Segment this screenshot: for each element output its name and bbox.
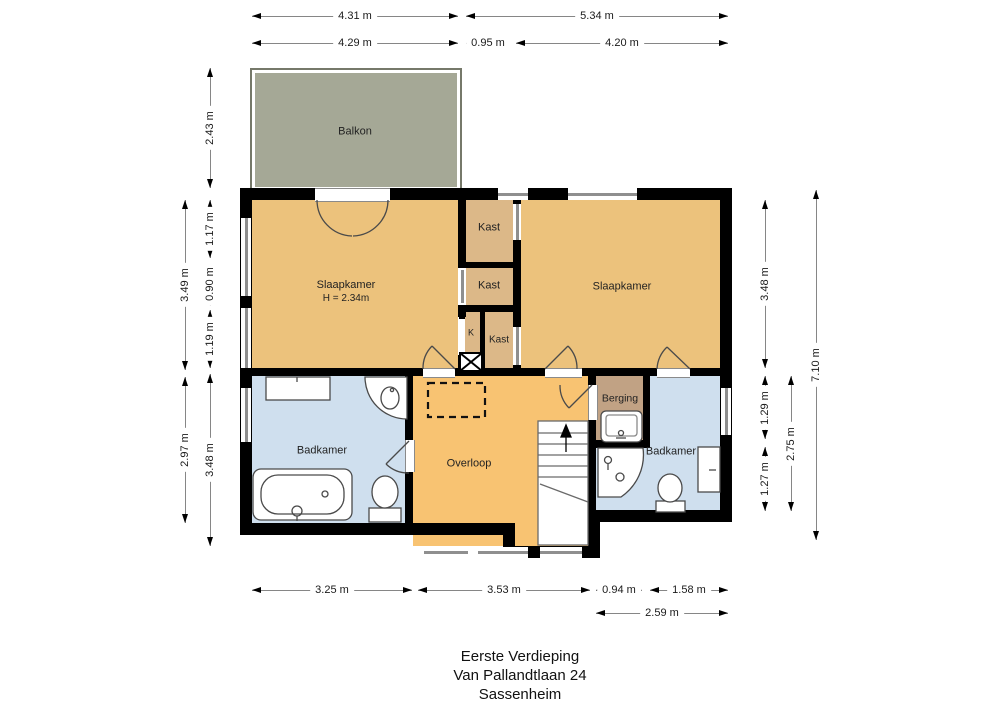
dim-arrowhead — [719, 40, 728, 46]
dim-label: 0.90 m — [204, 262, 216, 306]
dim-arrowhead — [182, 361, 188, 370]
dim-arrowhead — [207, 537, 213, 546]
dimension: 3.49 m — [179, 200, 191, 370]
dim-label: 1.58 m — [667, 584, 711, 596]
dim-arrowhead — [788, 502, 794, 511]
dim-arrowhead — [650, 587, 659, 593]
dim-arrowhead — [182, 377, 188, 386]
dim-label: 2.97 m — [179, 428, 191, 472]
dim-arrowhead — [252, 587, 261, 593]
dim-arrowhead — [762, 359, 768, 368]
dim-arrowhead — [813, 190, 819, 199]
dimension: 4.31 m — [252, 10, 458, 22]
dim-arrowhead — [719, 13, 728, 19]
dim-label: 3.49 m — [179, 263, 191, 307]
dim-label: 2.59 m — [640, 607, 684, 619]
dim-arrowhead — [762, 502, 768, 511]
dimension: 2.97 m — [179, 377, 191, 523]
dimension: 0.90 m — [204, 262, 216, 306]
dim-arrowhead — [252, 40, 261, 46]
dim-arrowhead — [252, 13, 261, 19]
dim-arrowhead — [516, 40, 525, 46]
plan-caption: Eerste Verdieping Van Pallandtlaan 24 Sa… — [453, 647, 586, 704]
dim-label: 2.43 m — [204, 106, 216, 150]
dim-label: 3.48 m — [759, 262, 771, 306]
dimension: 1.58 m — [650, 584, 728, 596]
dimension: 3.25 m — [252, 584, 412, 596]
dim-arrowhead — [466, 13, 475, 19]
dim-label: 5.34 m — [575, 10, 619, 22]
dimension: 4.20 m — [516, 37, 728, 49]
dimension: 0.94 m — [596, 584, 642, 596]
dim-label: 1.29 m — [759, 386, 771, 430]
dimension: 7.10 m — [810, 190, 822, 540]
dim-arrowhead — [719, 587, 728, 593]
dim-arrowhead — [719, 610, 728, 616]
caption-address: Van Pallandtlaan 24 — [453, 666, 586, 685]
dimension: 3.48 m — [759, 200, 771, 368]
dimension: 1.17 m — [204, 200, 216, 258]
dim-arrowhead — [762, 447, 768, 456]
dim-arrowhead — [182, 514, 188, 523]
dim-arrowhead — [596, 610, 605, 616]
dim-label: 0.95 m — [466, 37, 510, 49]
dim-arrowhead — [207, 179, 213, 188]
floorplan: BalkonSlaapkamerH = 2.34mKastKastKKastSl… — [0, 0, 1000, 707]
dimension: 2.43 m — [204, 68, 216, 188]
dim-label: 7.10 m — [810, 343, 822, 387]
dimension: 4.29 m — [252, 37, 458, 49]
dim-label: 4.31 m — [333, 10, 377, 22]
dim-arrowhead — [581, 587, 590, 593]
dim-label: 0.94 m — [597, 584, 641, 596]
dim-arrowhead — [762, 200, 768, 209]
dim-arrowhead — [762, 376, 768, 385]
dimension: 2.75 m — [785, 376, 797, 511]
dim-arrowhead — [207, 374, 213, 383]
dim-label: 1.19 m — [204, 317, 216, 361]
dim-label: 3.25 m — [310, 584, 354, 596]
dim-arrowhead — [403, 587, 412, 593]
dim-arrowhead — [182, 200, 188, 209]
dimension: 3.48 m — [204, 374, 216, 546]
dim-label: 4.20 m — [600, 37, 644, 49]
dimension: 0.95 m — [466, 37, 510, 49]
dim-label: 3.48 m — [204, 438, 216, 482]
caption-floor: Eerste Verdieping — [453, 647, 586, 666]
dimension: 1.29 m — [759, 376, 771, 439]
dim-arrowhead — [449, 40, 458, 46]
dim-label: 3.53 m — [482, 584, 526, 596]
dimension: 1.27 m — [759, 447, 771, 511]
dim-label: 4.29 m — [333, 37, 377, 49]
dim-label: 1.27 m — [759, 457, 771, 501]
dim-label: 1.17 m — [204, 207, 216, 251]
dim-arrowhead — [418, 587, 427, 593]
dim-arrowhead — [207, 68, 213, 77]
dimension: 5.34 m — [466, 10, 728, 22]
dim-arrowhead — [449, 13, 458, 19]
dim-arrowhead — [813, 531, 819, 540]
dim-arrowhead — [788, 376, 794, 385]
dim-arrowhead — [762, 430, 768, 439]
dimension: 2.59 m — [596, 607, 728, 619]
dimension: 1.19 m — [204, 310, 216, 368]
dimensions-layer: 4.31 m5.34 m4.29 m0.95 m4.20 m2.43 m1.17… — [0, 0, 1000, 707]
caption-city: Sassenheim — [453, 685, 586, 704]
dimension: 3.53 m — [418, 584, 590, 596]
dim-label: 2.75 m — [785, 422, 797, 466]
